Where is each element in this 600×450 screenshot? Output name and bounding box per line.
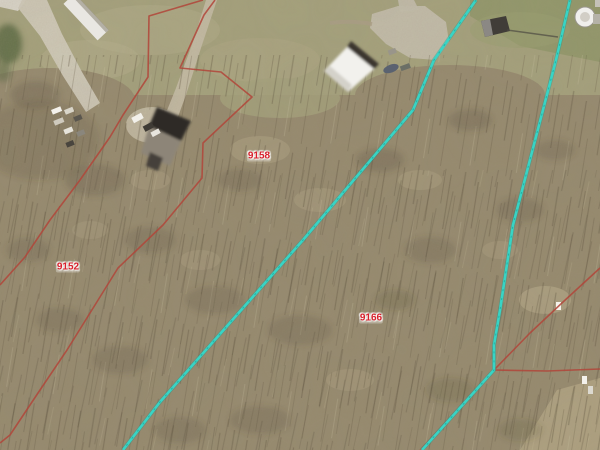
aerial-map-view[interactable]: 915291589166	[0, 0, 600, 450]
aerial-imagery	[0, 0, 600, 450]
terrain-noise	[0, 0, 600, 450]
